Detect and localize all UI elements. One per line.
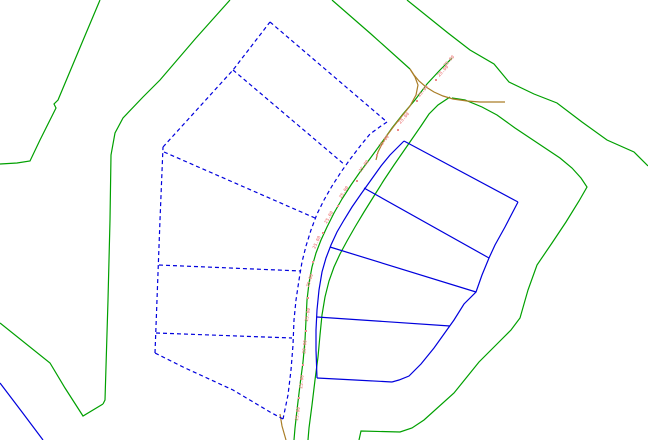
proposed-parcels-dashed-blue-segment: [159, 265, 301, 271]
old-road-alignment-brown-segment: [410, 69, 505, 102]
parcels-solid-blue-segment: [364, 188, 489, 258]
parcels-solid-blue-segment: [0, 383, 43, 440]
proposed-parcels-dashed-blue-segment: [155, 147, 163, 353]
proposed-parcels-dashed-blue-segment: [163, 22, 270, 147]
station-tick: [435, 79, 437, 81]
proposed-parcels-dashed-blue: [155, 22, 387, 419]
dimension-labels: 25.0025.0025.0025.0025.0025.0025.0025.00…: [294, 54, 456, 421]
dimension-label: 25.00: [301, 340, 308, 354]
proposed-parcels-dashed-blue-segment: [156, 333, 292, 338]
site-boundary-green-segment: [407, 0, 648, 166]
dimension-label: 25.00: [417, 84, 430, 98]
parcels-solid-blue-segment: [330, 247, 476, 292]
dimension-label: 25.00: [312, 235, 323, 250]
dimension-label: 25.00: [305, 273, 315, 288]
old-road-alignment-brown: [280, 69, 505, 440]
dimension-label: 25.00: [378, 134, 391, 149]
drawing-stage: 25.0025.0025.0025.0025.0025.0025.0025.00…: [0, 0, 648, 440]
parcels-solid-blue-segment: [404, 141, 518, 202]
dimension-label: 25.00: [294, 406, 302, 421]
dimension-label: 25.00: [304, 307, 312, 322]
site-boundary-green-segment: [0, 0, 100, 164]
dimension-label: 25.00: [298, 375, 305, 389]
station-tick: [322, 232, 324, 234]
site-boundary-green: [0, 0, 648, 440]
proposed-parcels-dashed-blue-segment: [283, 122, 387, 419]
site-boundary-green-segment: [103, 0, 230, 404]
parcels-solid-blue-segment: [317, 378, 392, 382]
station-tick: [307, 297, 309, 299]
proposed-parcels-dashed-blue-segment: [155, 353, 283, 419]
station-tick: [302, 364, 304, 366]
dimension-label: 25.00: [323, 210, 335, 225]
site-boundary-green-segment: [359, 98, 587, 440]
proposed-parcels-dashed-blue-segment: [164, 152, 315, 218]
parcels-solid-blue-segment: [317, 317, 450, 326]
parcels-solid-blue-segment: [392, 202, 518, 382]
station-tick: [298, 397, 300, 399]
station-tick: [305, 330, 307, 332]
site-boundary-green-segment: [332, 0, 410, 69]
parcel-plan-canvas[interactable]: 25.0025.0025.0025.0025.0025.0025.0025.00…: [0, 0, 648, 440]
station-tick: [356, 180, 358, 182]
station-tick: [397, 129, 399, 131]
station-tick: [376, 154, 378, 156]
proposed-parcels-dashed-blue-segment: [270, 22, 387, 122]
dimension-label: 25.00: [338, 185, 351, 200]
site-boundary-green-segment: [308, 97, 450, 440]
station-tick: [416, 100, 418, 102]
station-tick: [337, 205, 339, 207]
parcels-solid-blue: [0, 141, 518, 440]
site-boundary-green-segment: [0, 323, 103, 416]
station-tick: [312, 261, 314, 263]
proposed-parcels-dashed-blue-segment: [233, 70, 345, 165]
parcels-solid-blue-segment: [316, 141, 404, 378]
